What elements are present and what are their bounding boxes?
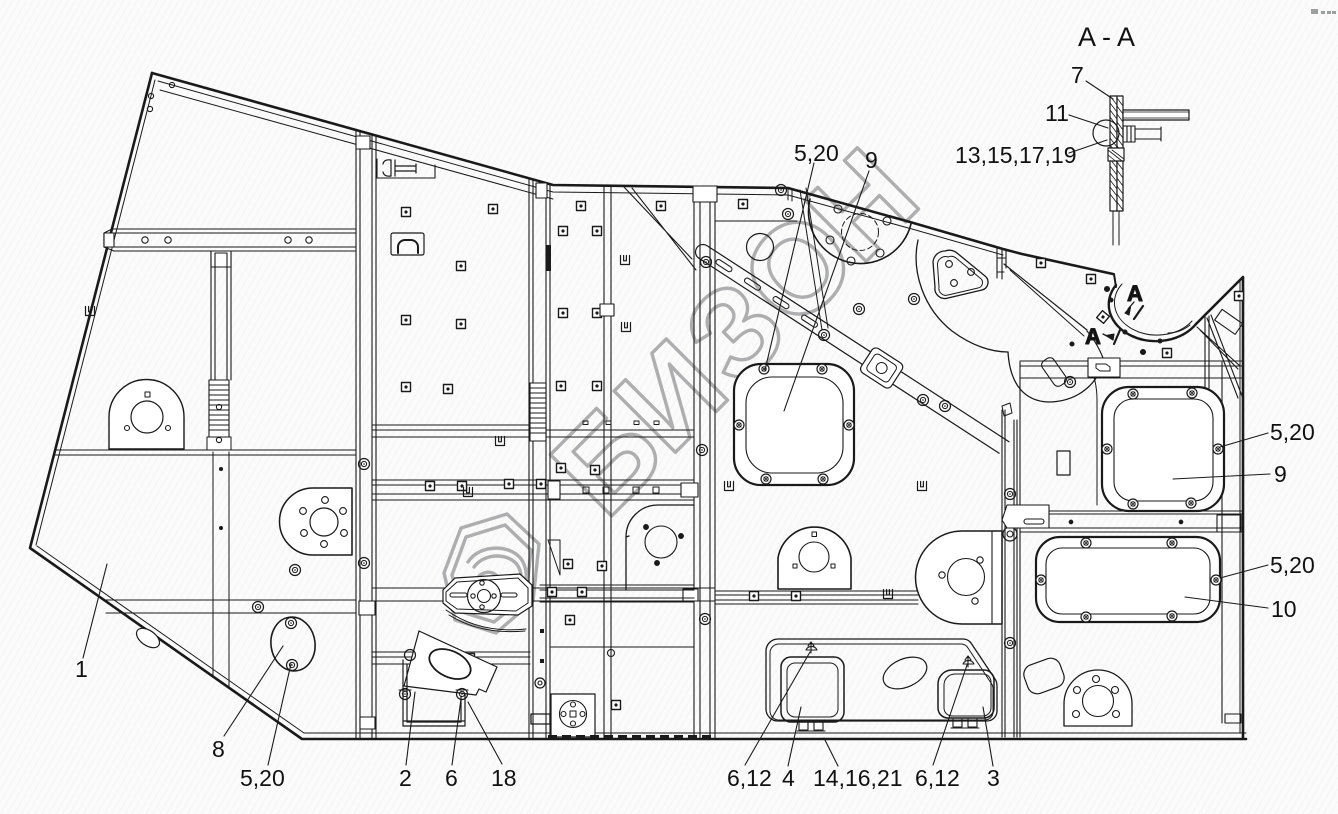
svg-text:5,20: 5,20 — [1270, 552, 1315, 578]
svg-text:1: 1 — [75, 656, 88, 682]
svg-text:8: 8 — [212, 736, 225, 762]
svg-text:3: 3 — [987, 765, 1000, 791]
svg-text:11: 11 — [1045, 100, 1069, 126]
svg-text:6,12: 6,12 — [915, 765, 960, 791]
svg-text:A: A — [1085, 324, 1101, 349]
svg-text:7: 7 — [1071, 62, 1084, 88]
svg-text:9: 9 — [865, 147, 878, 173]
svg-text:5,20: 5,20 — [240, 765, 285, 791]
svg-text:A - A: A - A — [1078, 22, 1135, 52]
svg-text:18: 18 — [491, 765, 517, 791]
svg-text:6,12: 6,12 — [727, 765, 772, 791]
svg-text:14,16,21: 14,16,21 — [813, 765, 903, 791]
svg-text:6: 6 — [445, 765, 458, 791]
svg-text:10: 10 — [1271, 596, 1297, 622]
svg-text:5,20: 5,20 — [794, 140, 839, 166]
svg-text:2: 2 — [399, 765, 412, 791]
svg-text:5,20: 5,20 — [1270, 419, 1315, 445]
svg-text:9: 9 — [1274, 461, 1287, 487]
svg-text:13,15,17,19: 13,15,17,19 — [955, 142, 1077, 168]
svg-text:4: 4 — [782, 765, 795, 791]
svg-text:A: A — [1127, 281, 1143, 306]
